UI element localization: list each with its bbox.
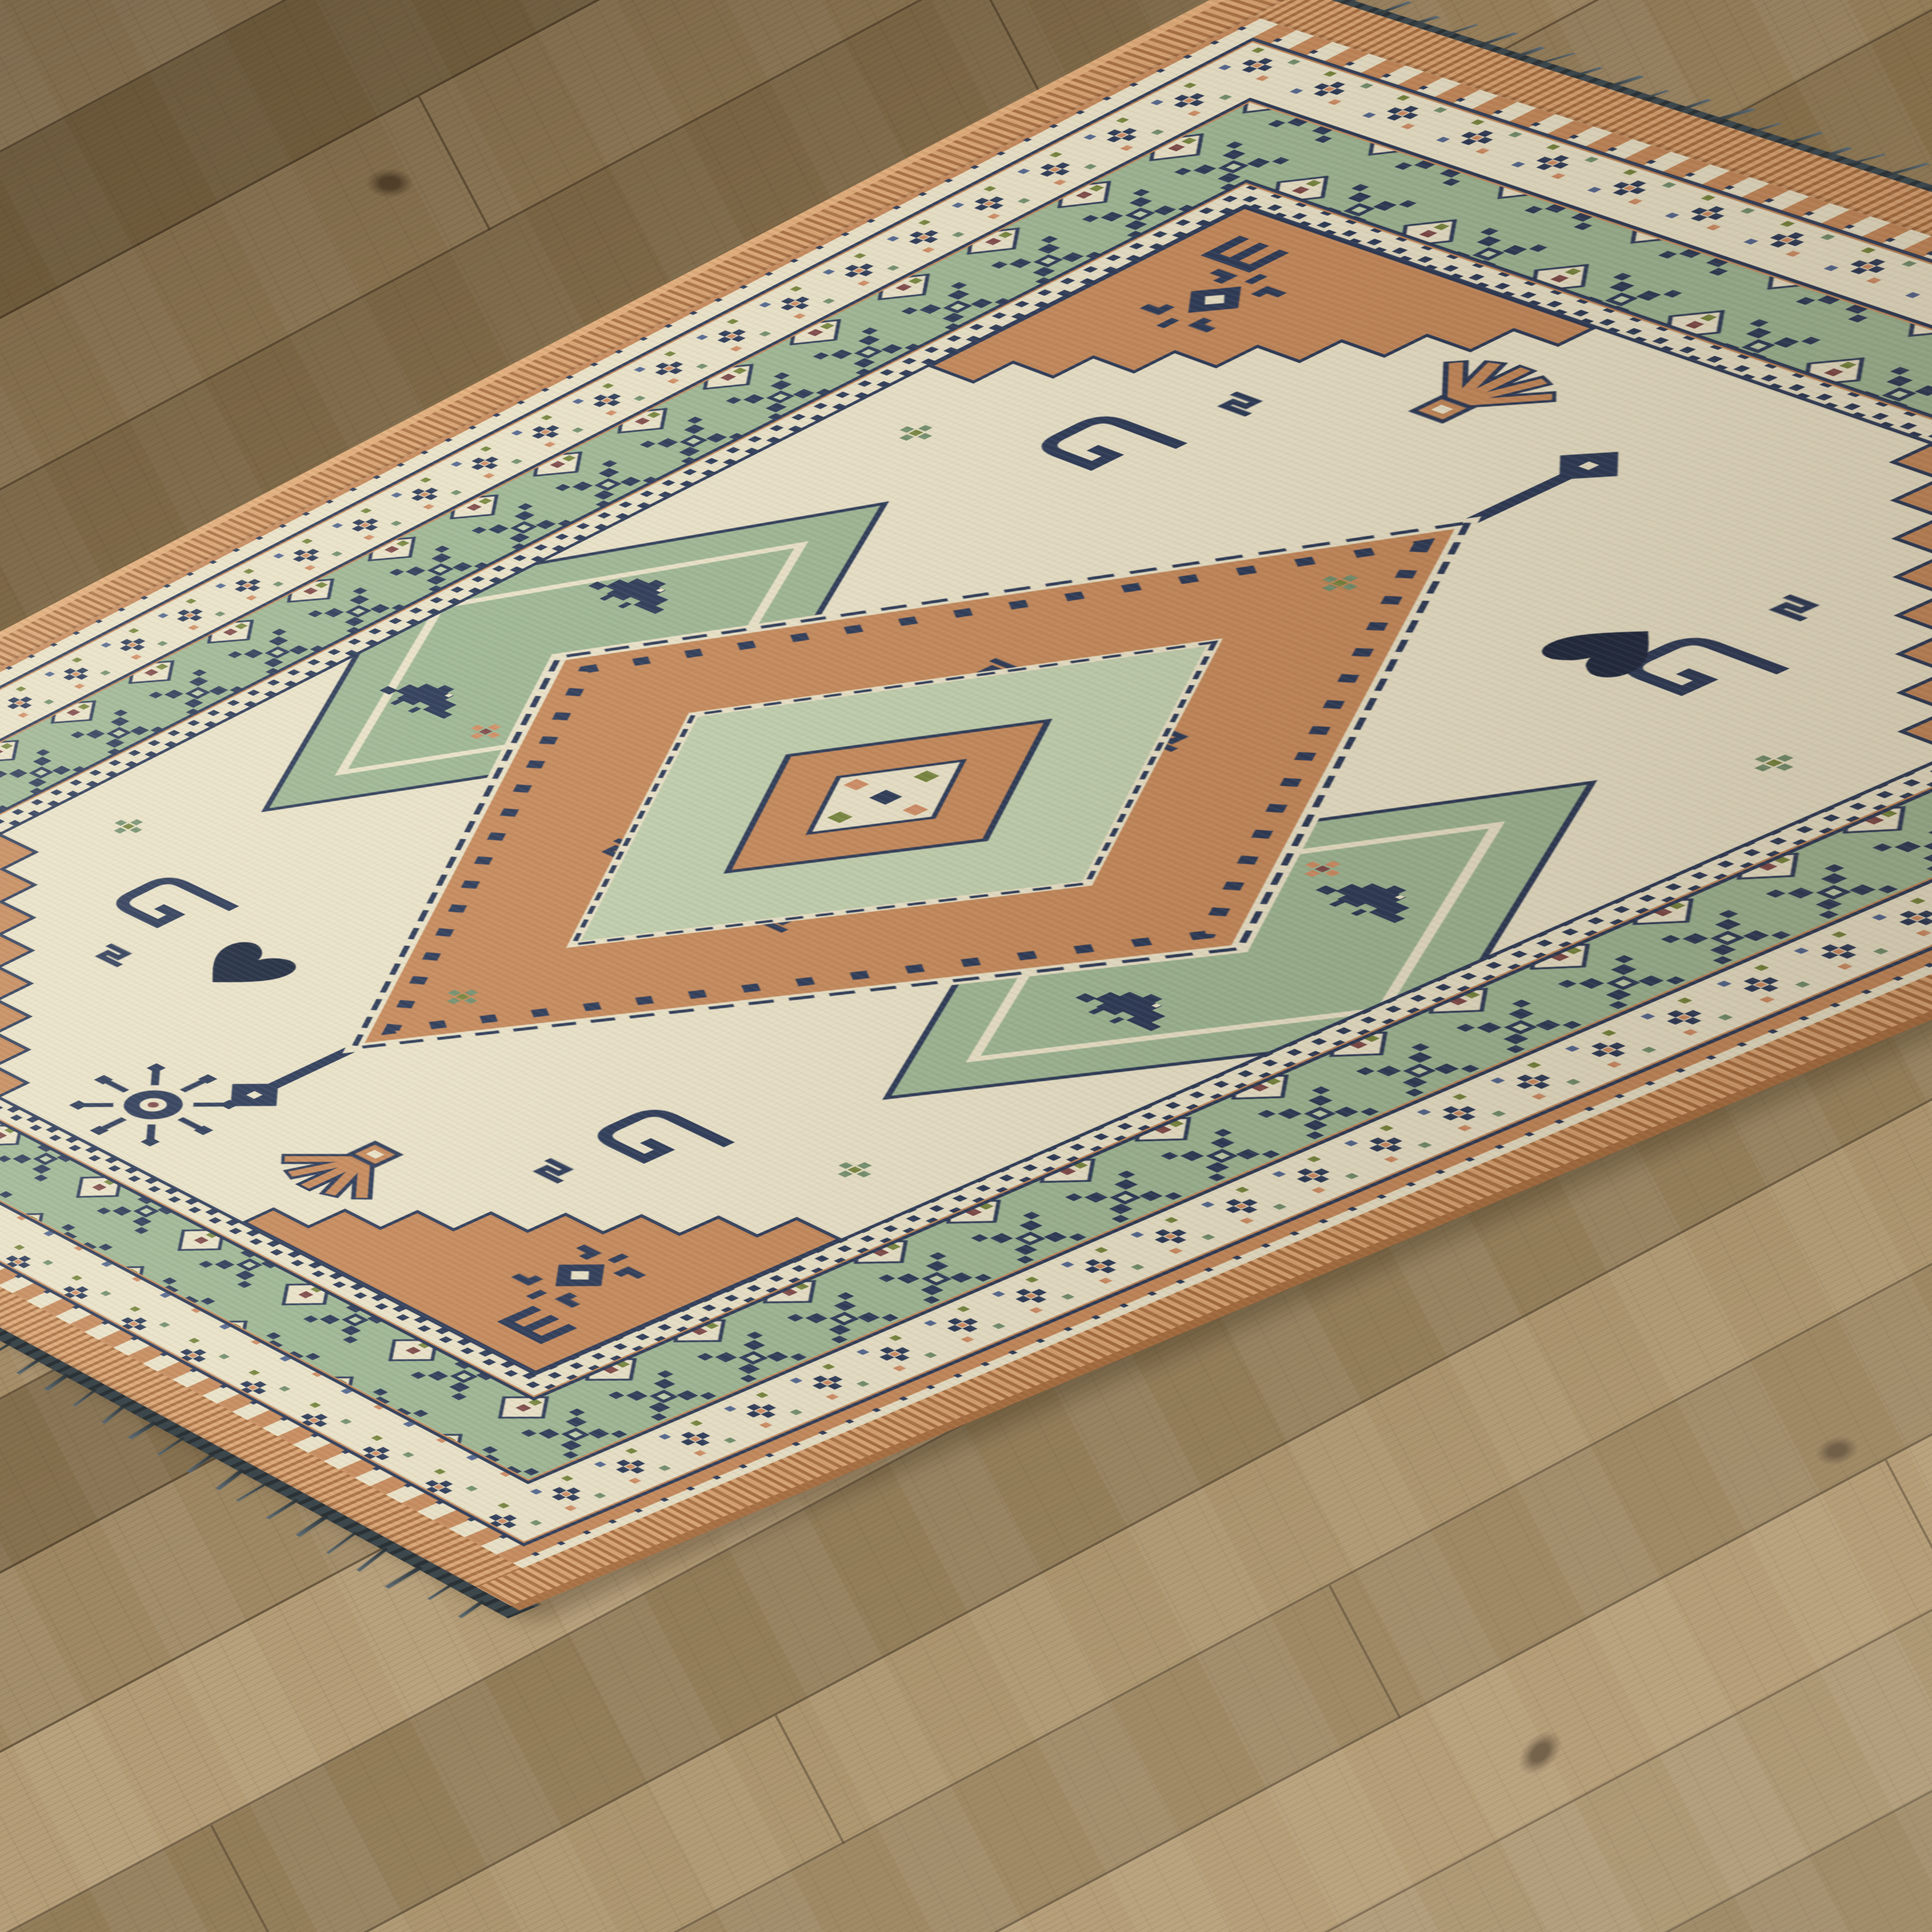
- plank-seam: [210, 1825, 291, 1932]
- plank-seam: [1885, 1460, 1932, 1598]
- wood-knot: [366, 168, 414, 197]
- scene: [0, 0, 1932, 1932]
- plank-seam: [775, 1715, 845, 1844]
- plank-seam: [418, 96, 491, 231]
- plank-seam: [1329, 1585, 1401, 1719]
